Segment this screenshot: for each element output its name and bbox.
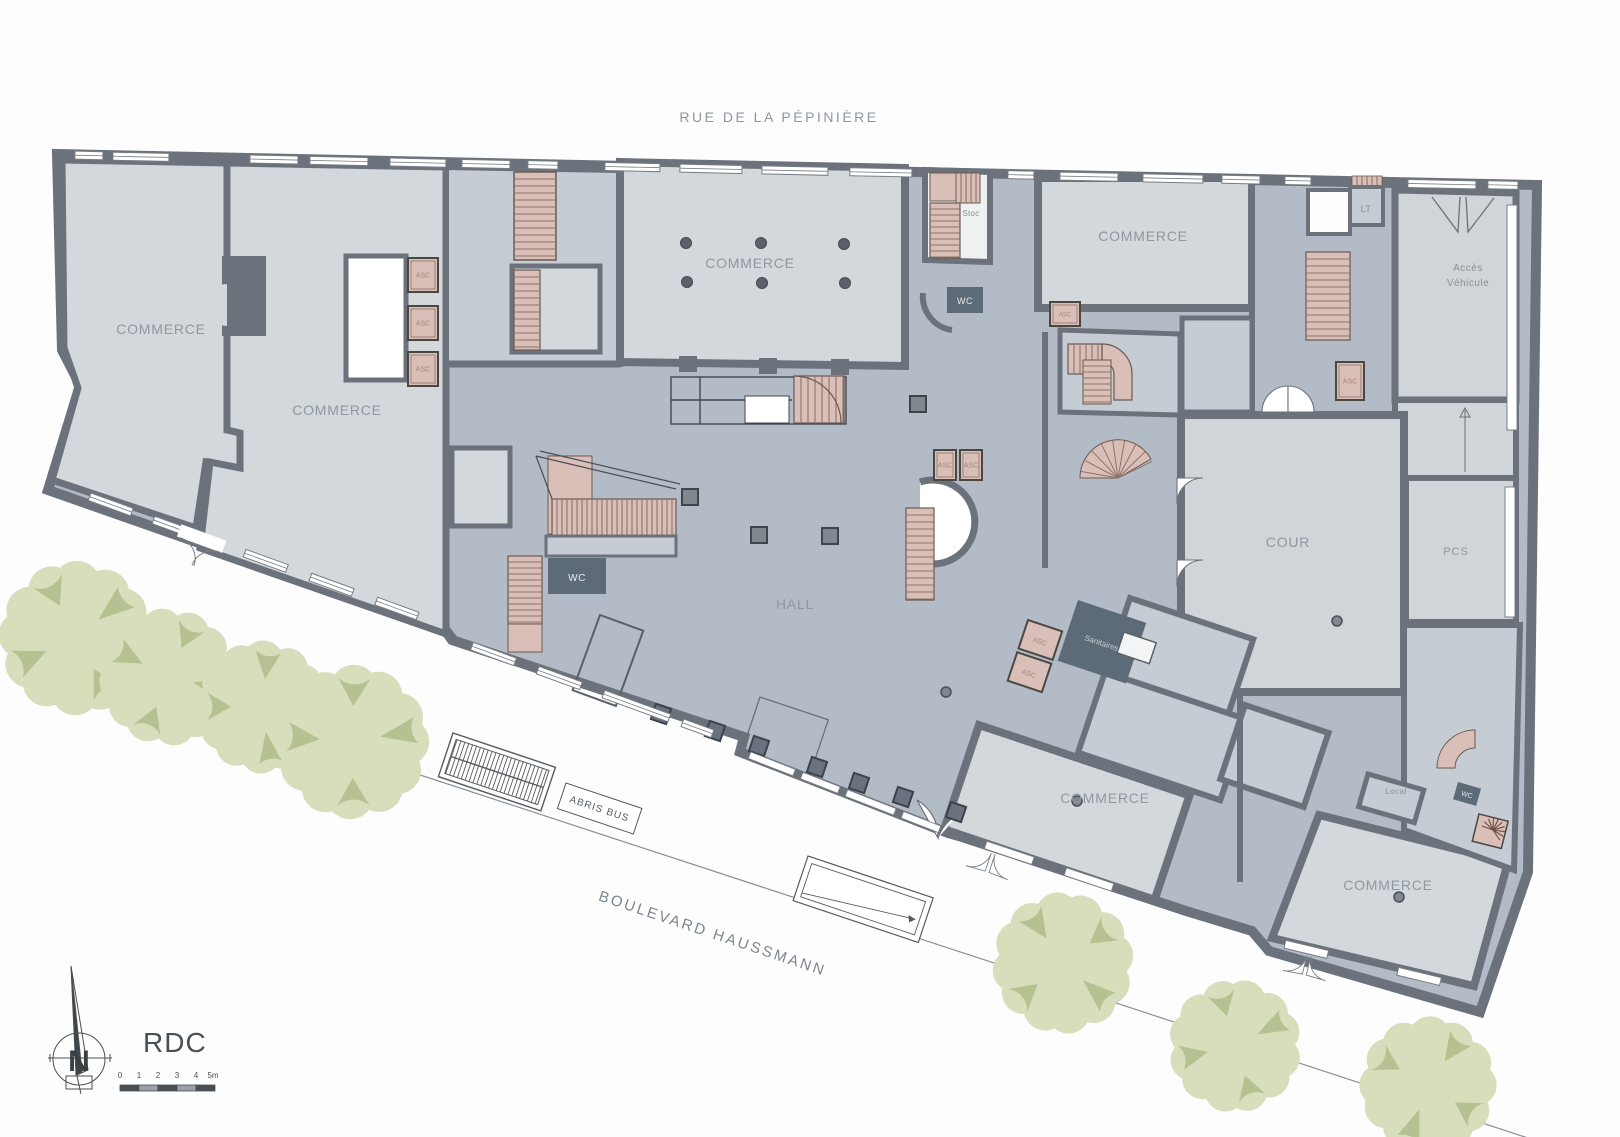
svg-text:ASC: ASC bbox=[416, 367, 430, 374]
svg-text:COMMERCE: COMMERCE bbox=[705, 255, 795, 271]
svg-text:ASC: ASC bbox=[964, 463, 978, 470]
svg-text:5m: 5m bbox=[207, 1071, 218, 1080]
svg-text:3: 3 bbox=[175, 1071, 180, 1080]
svg-text:N: N bbox=[68, 1045, 90, 1078]
svg-text:RDC: RDC bbox=[143, 1027, 207, 1058]
svg-text:LT: LT bbox=[1361, 204, 1372, 214]
svg-text:Local: Local bbox=[1385, 787, 1407, 796]
svg-text:ASC: ASC bbox=[938, 463, 952, 470]
svg-text:Stoc: Stoc bbox=[962, 209, 979, 218]
svg-text:0: 0 bbox=[118, 1071, 123, 1080]
svg-text:COMMERCE: COMMERCE bbox=[1343, 877, 1433, 893]
svg-text:COMMERCE: COMMERCE bbox=[1098, 228, 1188, 244]
svg-text:WC: WC bbox=[957, 296, 973, 306]
svg-text:COMMERCE: COMMERCE bbox=[1060, 790, 1150, 806]
svg-text:HALL: HALL bbox=[776, 596, 814, 612]
svg-text:COUR: COUR bbox=[1266, 534, 1310, 550]
svg-text:ASC: ASC bbox=[1343, 379, 1357, 386]
svg-text:ASC: ASC bbox=[416, 321, 430, 328]
svg-text:PCS: PCS bbox=[1443, 546, 1469, 558]
svg-text:Accès: Accès bbox=[1453, 263, 1483, 274]
svg-text:COMMERCE: COMMERCE bbox=[292, 402, 382, 418]
svg-text:WC: WC bbox=[568, 573, 586, 584]
svg-text:COMMERCE: COMMERCE bbox=[116, 321, 206, 337]
svg-text:Véhicule: Véhicule bbox=[1447, 278, 1489, 289]
svg-text:ASC: ASC bbox=[1059, 313, 1072, 319]
svg-text:4: 4 bbox=[194, 1071, 199, 1080]
svg-text:ASC: ASC bbox=[416, 273, 430, 280]
svg-text:RUE DE LA PÉPINIÈRE: RUE DE LA PÉPINIÈRE bbox=[679, 109, 878, 125]
svg-text:1: 1 bbox=[137, 1071, 142, 1080]
svg-text:2: 2 bbox=[156, 1071, 161, 1080]
